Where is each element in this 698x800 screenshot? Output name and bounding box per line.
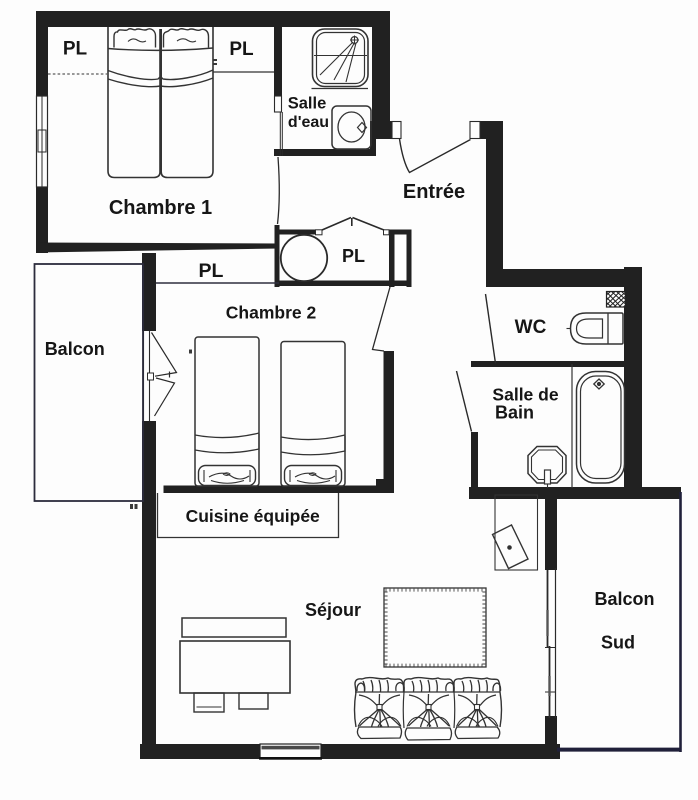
svg-text:Bain: Bain [495,403,534,423]
svg-text:WC: WC [515,317,547,338]
svg-text:Balcon: Balcon [45,339,105,359]
svg-text:PL: PL [63,39,88,60]
svg-text:Entrée: Entrée [403,181,465,203]
svg-text:Chambre 2: Chambre 2 [226,303,317,323]
svg-text:Chambre 1: Chambre 1 [109,197,212,219]
svg-text:Salle: Salle [288,95,327,113]
svg-text:d'eau: d'eau [288,114,329,131]
svg-text:Sud: Sud [601,633,635,653]
svg-text:Séjour: Séjour [305,600,361,620]
svg-text:PL: PL [229,39,254,60]
svg-text:Balcon: Balcon [594,589,654,609]
svg-text:Salle de: Salle de [492,385,558,405]
svg-text:PL: PL [342,246,365,266]
svg-text:Cuisine équipée: Cuisine équipée [186,506,320,526]
svg-text:PL: PL [199,260,224,282]
